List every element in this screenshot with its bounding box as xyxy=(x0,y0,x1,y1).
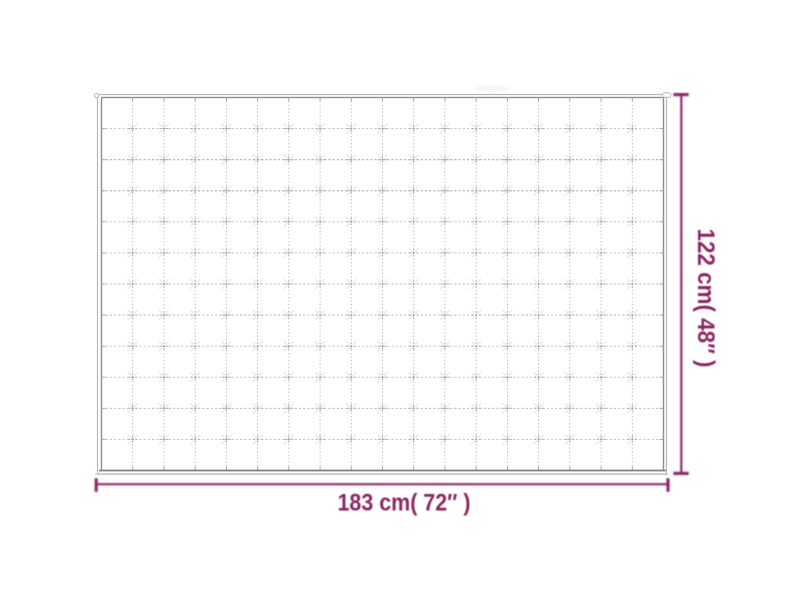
svg-text:122 cm( 48″ ): 122 cm( 48″ ) xyxy=(692,229,719,368)
svg-text:183 cm( 72″ ): 183 cm( 72″ ) xyxy=(338,490,471,517)
